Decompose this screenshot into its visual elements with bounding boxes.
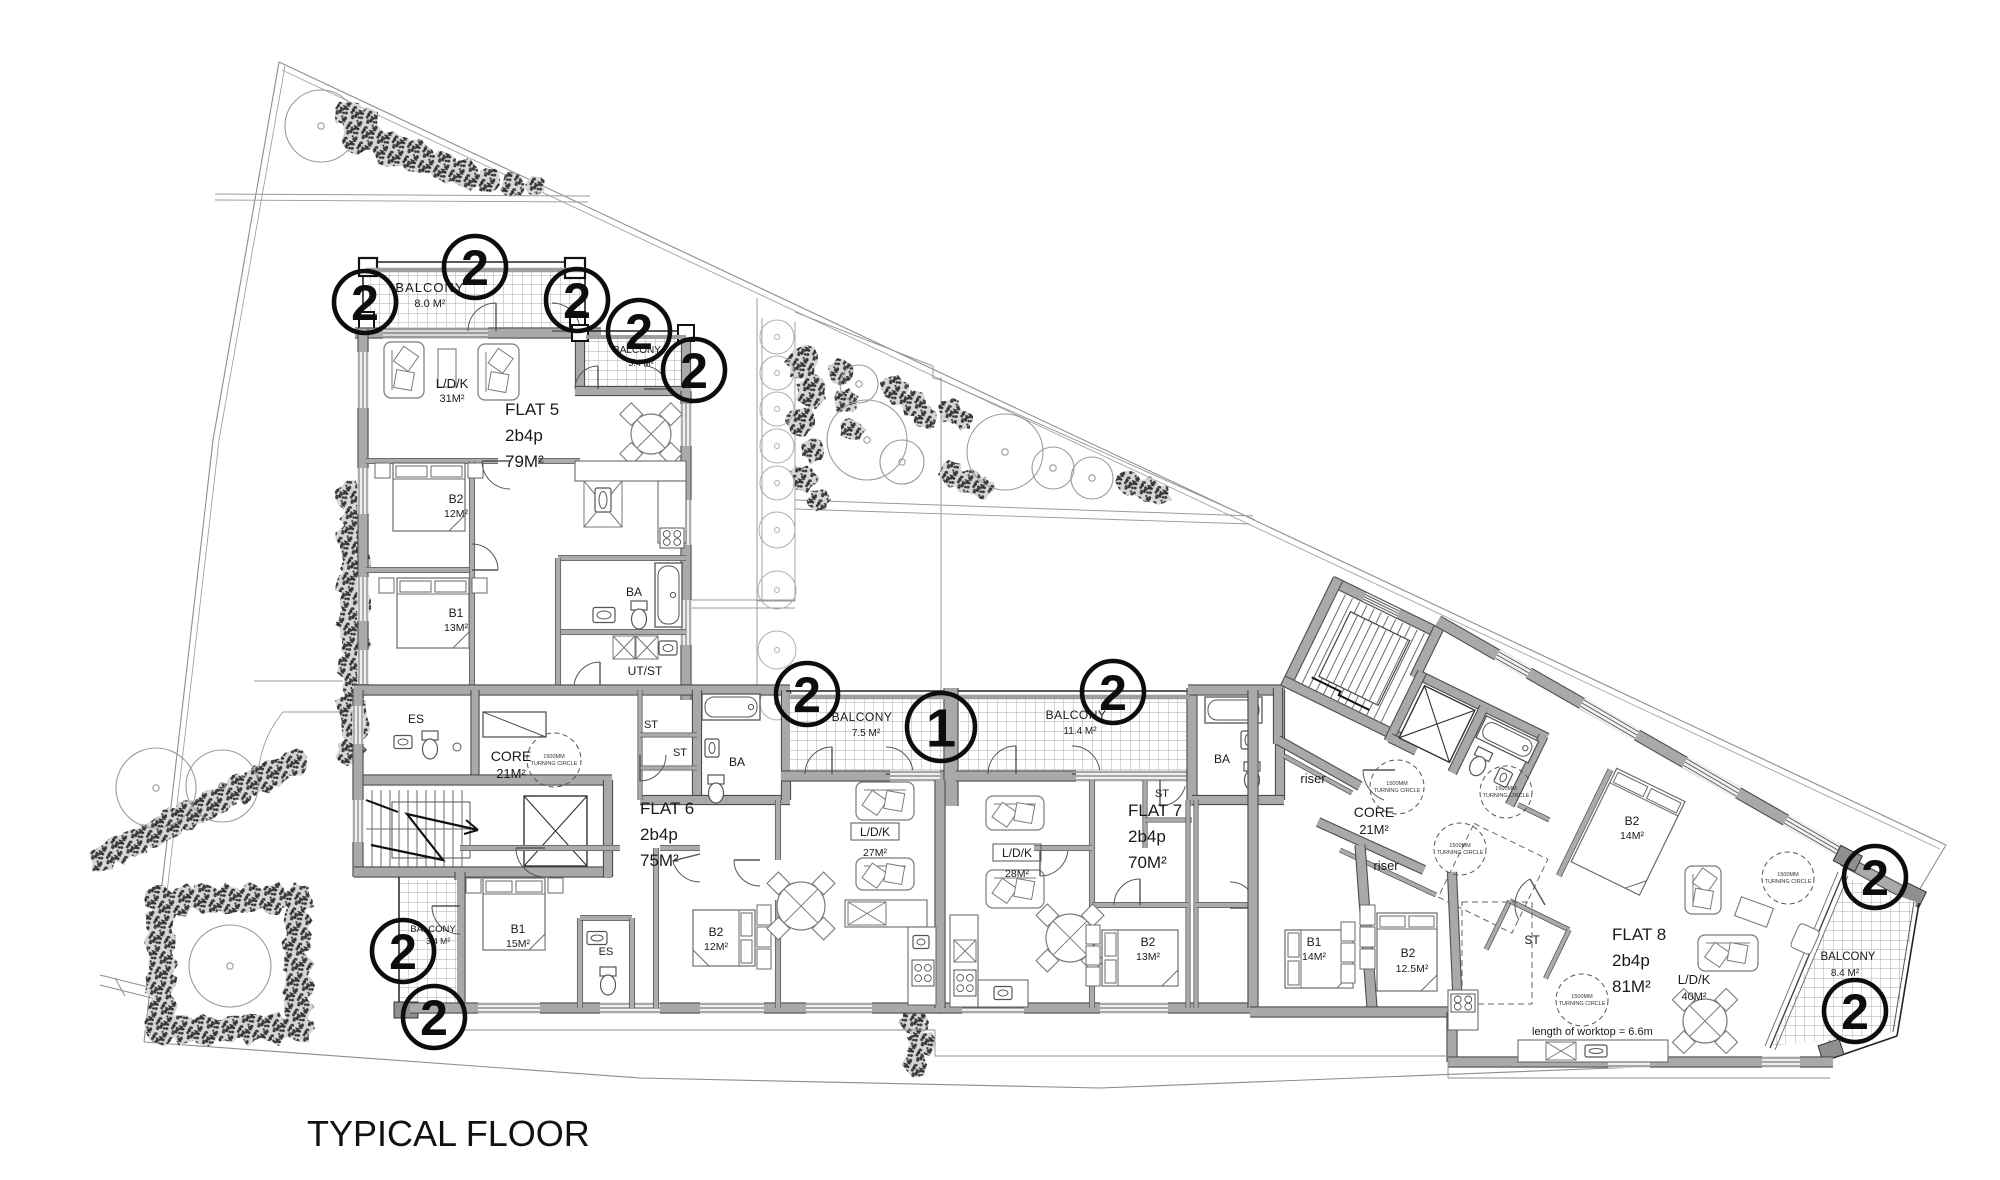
- svg-text:ES: ES: [408, 712, 424, 726]
- svg-text:ST: ST: [1524, 933, 1540, 947]
- svg-text:2b4p: 2b4p: [1612, 951, 1650, 970]
- svg-text:2: 2: [420, 990, 448, 1046]
- svg-text:BA: BA: [626, 585, 642, 599]
- svg-text:BA: BA: [1214, 752, 1230, 766]
- svg-text:ST: ST: [1155, 788, 1169, 800]
- svg-text:2: 2: [680, 343, 708, 399]
- svg-text:12M²: 12M²: [444, 508, 468, 520]
- svg-text:TURNING CIRCLE: TURNING CIRCLE: [1559, 1001, 1606, 1007]
- svg-text:2: 2: [793, 667, 821, 723]
- svg-text:2: 2: [461, 240, 489, 296]
- svg-text:14M²: 14M²: [1620, 830, 1644, 842]
- svg-text:2: 2: [625, 304, 653, 360]
- svg-text:TURNING CIRCLE: TURNING CIRCLE: [531, 761, 578, 767]
- svg-text:79M²: 79M²: [505, 452, 544, 471]
- svg-text:B1: B1: [1307, 935, 1322, 949]
- svg-text:2b4p: 2b4p: [1128, 827, 1166, 846]
- svg-text:L/D/K: L/D/K: [860, 825, 890, 839]
- svg-text:L/D/K: L/D/K: [436, 376, 469, 391]
- svg-text:ES: ES: [599, 946, 614, 958]
- svg-text:L/D/K: L/D/K: [1678, 972, 1711, 987]
- svg-text:11.4 M²: 11.4 M²: [1063, 726, 1097, 737]
- svg-text:TURNING CIRCLE: TURNING CIRCLE: [1437, 850, 1484, 856]
- svg-text:31M²: 31M²: [439, 393, 464, 405]
- svg-text:FLAT 8: FLAT 8: [1612, 925, 1666, 944]
- svg-text:B1: B1: [449, 606, 464, 620]
- svg-text:2: 2: [563, 273, 591, 329]
- svg-text:B2: B2: [449, 492, 464, 506]
- svg-text:21M²: 21M²: [1359, 822, 1389, 837]
- svg-text:length of worktop = 6.6m: length of worktop = 6.6m: [1532, 1026, 1653, 1038]
- svg-text:13M²: 13M²: [444, 622, 468, 634]
- svg-text:2: 2: [351, 275, 379, 331]
- svg-text:FLAT 7: FLAT 7: [1128, 801, 1182, 820]
- svg-text:TURNING CIRCLE: TURNING CIRCLE: [1483, 793, 1530, 799]
- svg-text:FLAT 6: FLAT 6: [640, 799, 694, 818]
- svg-text:15M²: 15M²: [506, 938, 530, 950]
- svg-text:81M²: 81M²: [1612, 977, 1651, 996]
- svg-text:ST: ST: [644, 719, 658, 731]
- svg-text:1500MM: 1500MM: [1386, 781, 1408, 787]
- svg-text:BALCONY: BALCONY: [1821, 951, 1876, 963]
- svg-text:B2: B2: [1401, 946, 1416, 960]
- svg-text:13M²: 13M²: [1136, 951, 1160, 963]
- svg-text:2: 2: [1099, 665, 1127, 721]
- svg-text:70M²: 70M²: [1128, 853, 1167, 872]
- svg-text:21M²: 21M²: [496, 766, 526, 781]
- svg-text:ST: ST: [673, 747, 687, 759]
- svg-text:12M²: 12M²: [704, 941, 728, 953]
- svg-text:CORE: CORE: [1354, 804, 1394, 820]
- svg-text:B2: B2: [1141, 935, 1156, 949]
- svg-text:TURNING CIRCLE: TURNING CIRCLE: [1765, 879, 1812, 885]
- svg-text:8.4 M²: 8.4 M²: [1831, 968, 1860, 979]
- svg-text:1500MM: 1500MM: [1449, 843, 1471, 849]
- svg-text:riser: riser: [1300, 771, 1326, 786]
- svg-text:B2: B2: [1625, 814, 1640, 828]
- svg-text:B1: B1: [511, 922, 526, 936]
- svg-text:TURNING CIRCLE: TURNING CIRCLE: [1374, 788, 1421, 794]
- svg-text:riser: riser: [1373, 858, 1399, 873]
- svg-text:CORE: CORE: [491, 748, 531, 764]
- svg-text:BALCONY: BALCONY: [832, 710, 893, 724]
- svg-text:BA: BA: [729, 755, 745, 769]
- svg-text:27M²: 27M²: [863, 847, 887, 859]
- svg-text:2: 2: [1861, 850, 1889, 906]
- svg-text:40M²: 40M²: [1681, 991, 1706, 1003]
- svg-text:UT/ST: UT/ST: [628, 664, 663, 678]
- svg-text:FLAT 5: FLAT 5: [505, 400, 559, 419]
- svg-text:75M²: 75M²: [640, 851, 679, 870]
- svg-text:1500MM: 1500MM: [1495, 786, 1517, 792]
- svg-text:12.5M²: 12.5M²: [1396, 963, 1429, 975]
- svg-text:2: 2: [1841, 984, 1869, 1040]
- svg-text:L/D/K: L/D/K: [1002, 846, 1032, 860]
- svg-text:TYPICAL FLOOR: TYPICAL FLOOR: [307, 1113, 590, 1154]
- svg-text:1500MM: 1500MM: [543, 754, 565, 760]
- svg-text:7.5 M²: 7.5 M²: [852, 728, 881, 739]
- svg-text:1500MM: 1500MM: [1777, 872, 1799, 878]
- svg-text:B2: B2: [709, 925, 724, 939]
- svg-text:1500MM: 1500MM: [1571, 994, 1593, 1000]
- svg-text:2b4p: 2b4p: [640, 825, 678, 844]
- svg-text:1: 1: [926, 698, 956, 758]
- svg-text:14M²: 14M²: [1302, 951, 1326, 963]
- svg-text:28M²: 28M²: [1005, 868, 1029, 880]
- svg-text:2b4p: 2b4p: [505, 426, 543, 445]
- svg-text:8.0 M²: 8.0 M²: [414, 298, 446, 310]
- svg-text:2: 2: [389, 924, 417, 980]
